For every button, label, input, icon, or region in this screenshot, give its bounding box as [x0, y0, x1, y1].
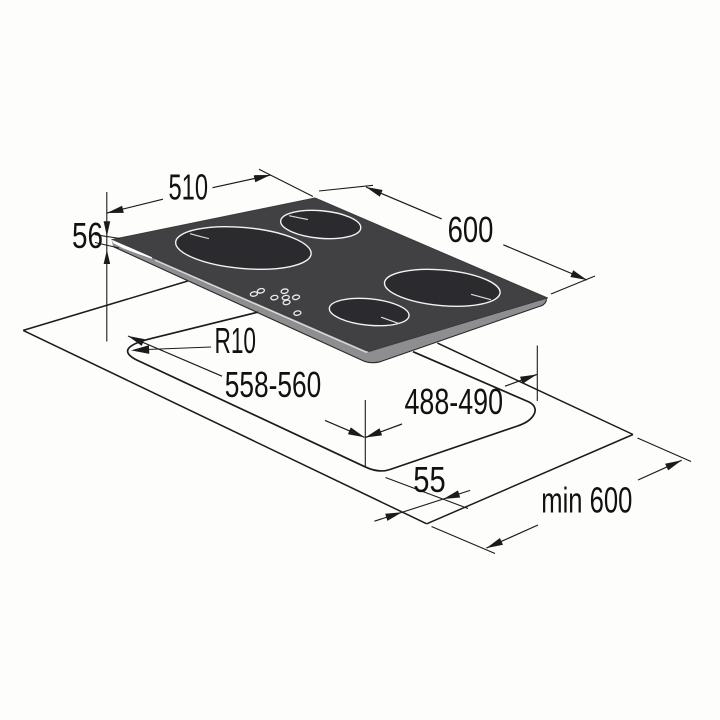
- svg-text:488-490: 488-490: [405, 381, 504, 422]
- svg-text:600: 600: [448, 209, 494, 250]
- svg-text:56: 56: [72, 215, 103, 256]
- svg-text:R10: R10: [215, 320, 257, 361]
- svg-text:min 600: min 600: [541, 480, 632, 521]
- svg-text:558-560: 558-560: [225, 364, 321, 405]
- svg-text:510: 510: [169, 167, 209, 208]
- svg-text:55: 55: [413, 459, 445, 500]
